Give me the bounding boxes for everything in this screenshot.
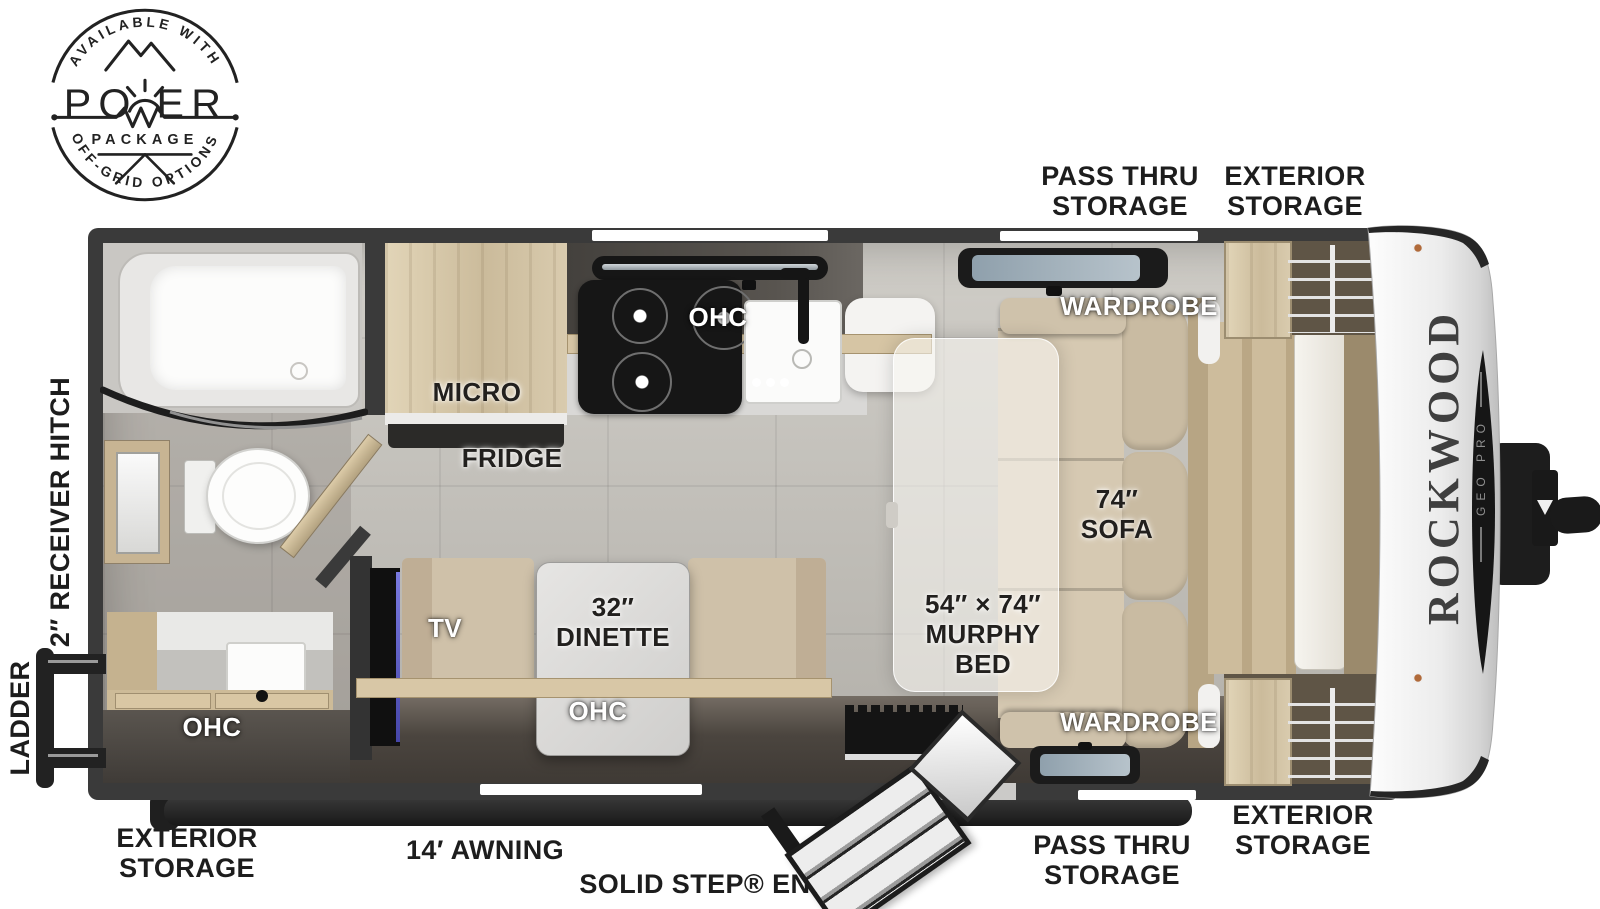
bathtub	[150, 266, 346, 390]
window-top-sofa	[1000, 231, 1198, 241]
label-sofa: 74″ SOFA	[1081, 484, 1153, 544]
window-top-kitchen	[592, 230, 828, 241]
svg-text:AVAILABLE WITH: AVAILABLE WITH	[65, 13, 225, 68]
label-text: STORAGE	[1041, 191, 1199, 221]
counter-tray	[115, 693, 211, 709]
ladder-arm	[44, 748, 106, 768]
wardrobe-top-door	[1224, 241, 1292, 339]
label-text: FRIDGE	[462, 443, 563, 473]
line-dot-right	[233, 114, 239, 120]
murphy-bed-handle	[886, 502, 898, 528]
burner-icon	[612, 288, 668, 344]
tv-edge-light	[396, 572, 400, 742]
floorplan-canvas: AVAILABLE WITH PO ER PACKAGE OFF-GRID OP…	[0, 0, 1600, 909]
window-bottom-front	[1078, 790, 1196, 800]
label-murphy-bed: 54″ × 74″ MURPHY BED	[925, 589, 1041, 679]
sofa-back-cushion	[1122, 302, 1188, 450]
label-text: PASS THRU	[1041, 161, 1199, 191]
label-text: OHC	[689, 302, 748, 332]
label-text: DINETTE	[556, 622, 670, 652]
cooktop-knob	[766, 378, 775, 387]
label-text: 74″	[1081, 484, 1153, 514]
label-micro: MICRO	[433, 377, 522, 407]
bath-kitchen-wall	[365, 243, 385, 415]
label-awning: 14′ AWNING	[406, 835, 564, 865]
label-text: EXTERIOR	[1224, 161, 1365, 191]
ladder-highlight	[48, 754, 98, 757]
window-latch	[1078, 742, 1092, 750]
tv-wall	[350, 556, 372, 760]
ladder-arm	[44, 654, 106, 674]
line-dot-left	[51, 114, 57, 120]
label-text: STORAGE	[116, 853, 257, 883]
awning-tube	[164, 796, 1192, 826]
label-exterior-storage-top: EXTERIOR STORAGE	[1224, 161, 1365, 221]
brand-name: ROCKWOOD	[1419, 309, 1468, 625]
label-text: OHC	[183, 712, 242, 742]
label-text: 2″ RECEIVER HITCH	[45, 377, 75, 647]
bench-back-cushion	[796, 558, 826, 698]
murphy-bed-panel	[1208, 322, 1296, 674]
tub-drain	[290, 362, 308, 380]
cooktop-knob	[780, 378, 789, 387]
furnace-fins	[845, 705, 963, 712]
brand-model: GEO PRO	[1474, 418, 1488, 516]
label-tv: TV	[428, 613, 462, 643]
badge-word-right: ER	[157, 80, 229, 126]
faucet-spout	[780, 268, 810, 279]
label-text: MURPHY	[925, 619, 1041, 649]
nose-cap: ROCKWOOD GEO PRO	[1340, 220, 1505, 805]
label-text: 54″ × 74″	[925, 589, 1041, 619]
label-text: WARDROBE	[1060, 707, 1218, 737]
label-text: SOFA	[1081, 514, 1153, 544]
cooktop-knob	[752, 378, 761, 387]
marker-light	[1414, 244, 1423, 253]
wardrobe-pole	[1330, 245, 1335, 333]
marker-light	[1414, 674, 1423, 683]
counter-tray	[215, 693, 329, 709]
label-exterior-storage-bottom-right: EXTERIOR STORAGE	[1232, 800, 1373, 860]
hood-knob	[742, 280, 756, 290]
toilet-seat	[222, 462, 296, 530]
bath-faucet	[256, 690, 268, 702]
label-text: TV	[428, 613, 462, 643]
label-exterior-storage-bottom-left: EXTERIOR STORAGE	[116, 823, 257, 883]
label-ohc-dinette: OHC	[569, 696, 628, 726]
ladder-highlight	[48, 660, 98, 663]
label-text: STORAGE	[1224, 191, 1365, 221]
badge-package-text: PACKAGE	[91, 132, 198, 148]
label-text: 14′ AWNING	[406, 835, 564, 865]
label-text: 32″	[556, 592, 670, 622]
label-text: WARDROBE	[1060, 291, 1218, 321]
hitch-triangle	[1537, 500, 1553, 515]
wardrobe-pole	[1330, 688, 1335, 780]
label-ohc-kitchen: OHC	[689, 302, 748, 332]
label-pass-thru-storage-bottom: PASS THRU STORAGE	[1033, 830, 1191, 890]
label-text: LADDER	[5, 661, 35, 776]
wardrobe-bottom-door	[1224, 678, 1292, 786]
label-receiver-hitch: 2″ RECEIVER HITCH	[45, 377, 75, 647]
mountains-icon	[106, 41, 174, 70]
faucet	[798, 272, 809, 344]
window-bottom-dinette	[480, 784, 702, 795]
label-text: EXTERIOR	[116, 823, 257, 853]
label-dinette: 32″ DINETTE	[556, 592, 670, 652]
label-pass-thru-storage-top: PASS THRU STORAGE	[1041, 161, 1199, 221]
dinette-ohc-shelf	[356, 678, 832, 698]
label-text: STORAGE	[1033, 860, 1191, 890]
roof-window-glass	[972, 255, 1140, 281]
vanity-mirror	[116, 452, 160, 554]
label-text: PASS THRU	[1033, 830, 1191, 860]
front-window-glass	[1040, 754, 1130, 776]
label-text: STORAGE	[1232, 830, 1373, 860]
label-text: BED	[925, 649, 1041, 679]
label-ladder: LADDER	[5, 661, 35, 776]
label-wardrobe-bottom: WARDROBE	[1060, 707, 1218, 737]
shower-door-track	[100, 382, 368, 442]
label-ohc-bath: OHC	[183, 712, 242, 742]
sink-drain	[792, 349, 812, 369]
label-text: MICRO	[433, 377, 522, 407]
label-fridge: FRIDGE	[462, 443, 563, 473]
hitch-jack-handle	[1549, 495, 1600, 535]
label-text: OHC	[569, 696, 628, 726]
power-package-badge: AVAILABLE WITH PO ER PACKAGE OFF-GRID OP…	[42, 2, 248, 208]
label-wardrobe-top: WARDROBE	[1060, 291, 1218, 321]
badge-arc-top-text: AVAILABLE WITH	[65, 13, 225, 68]
burner-icon	[612, 352, 672, 412]
